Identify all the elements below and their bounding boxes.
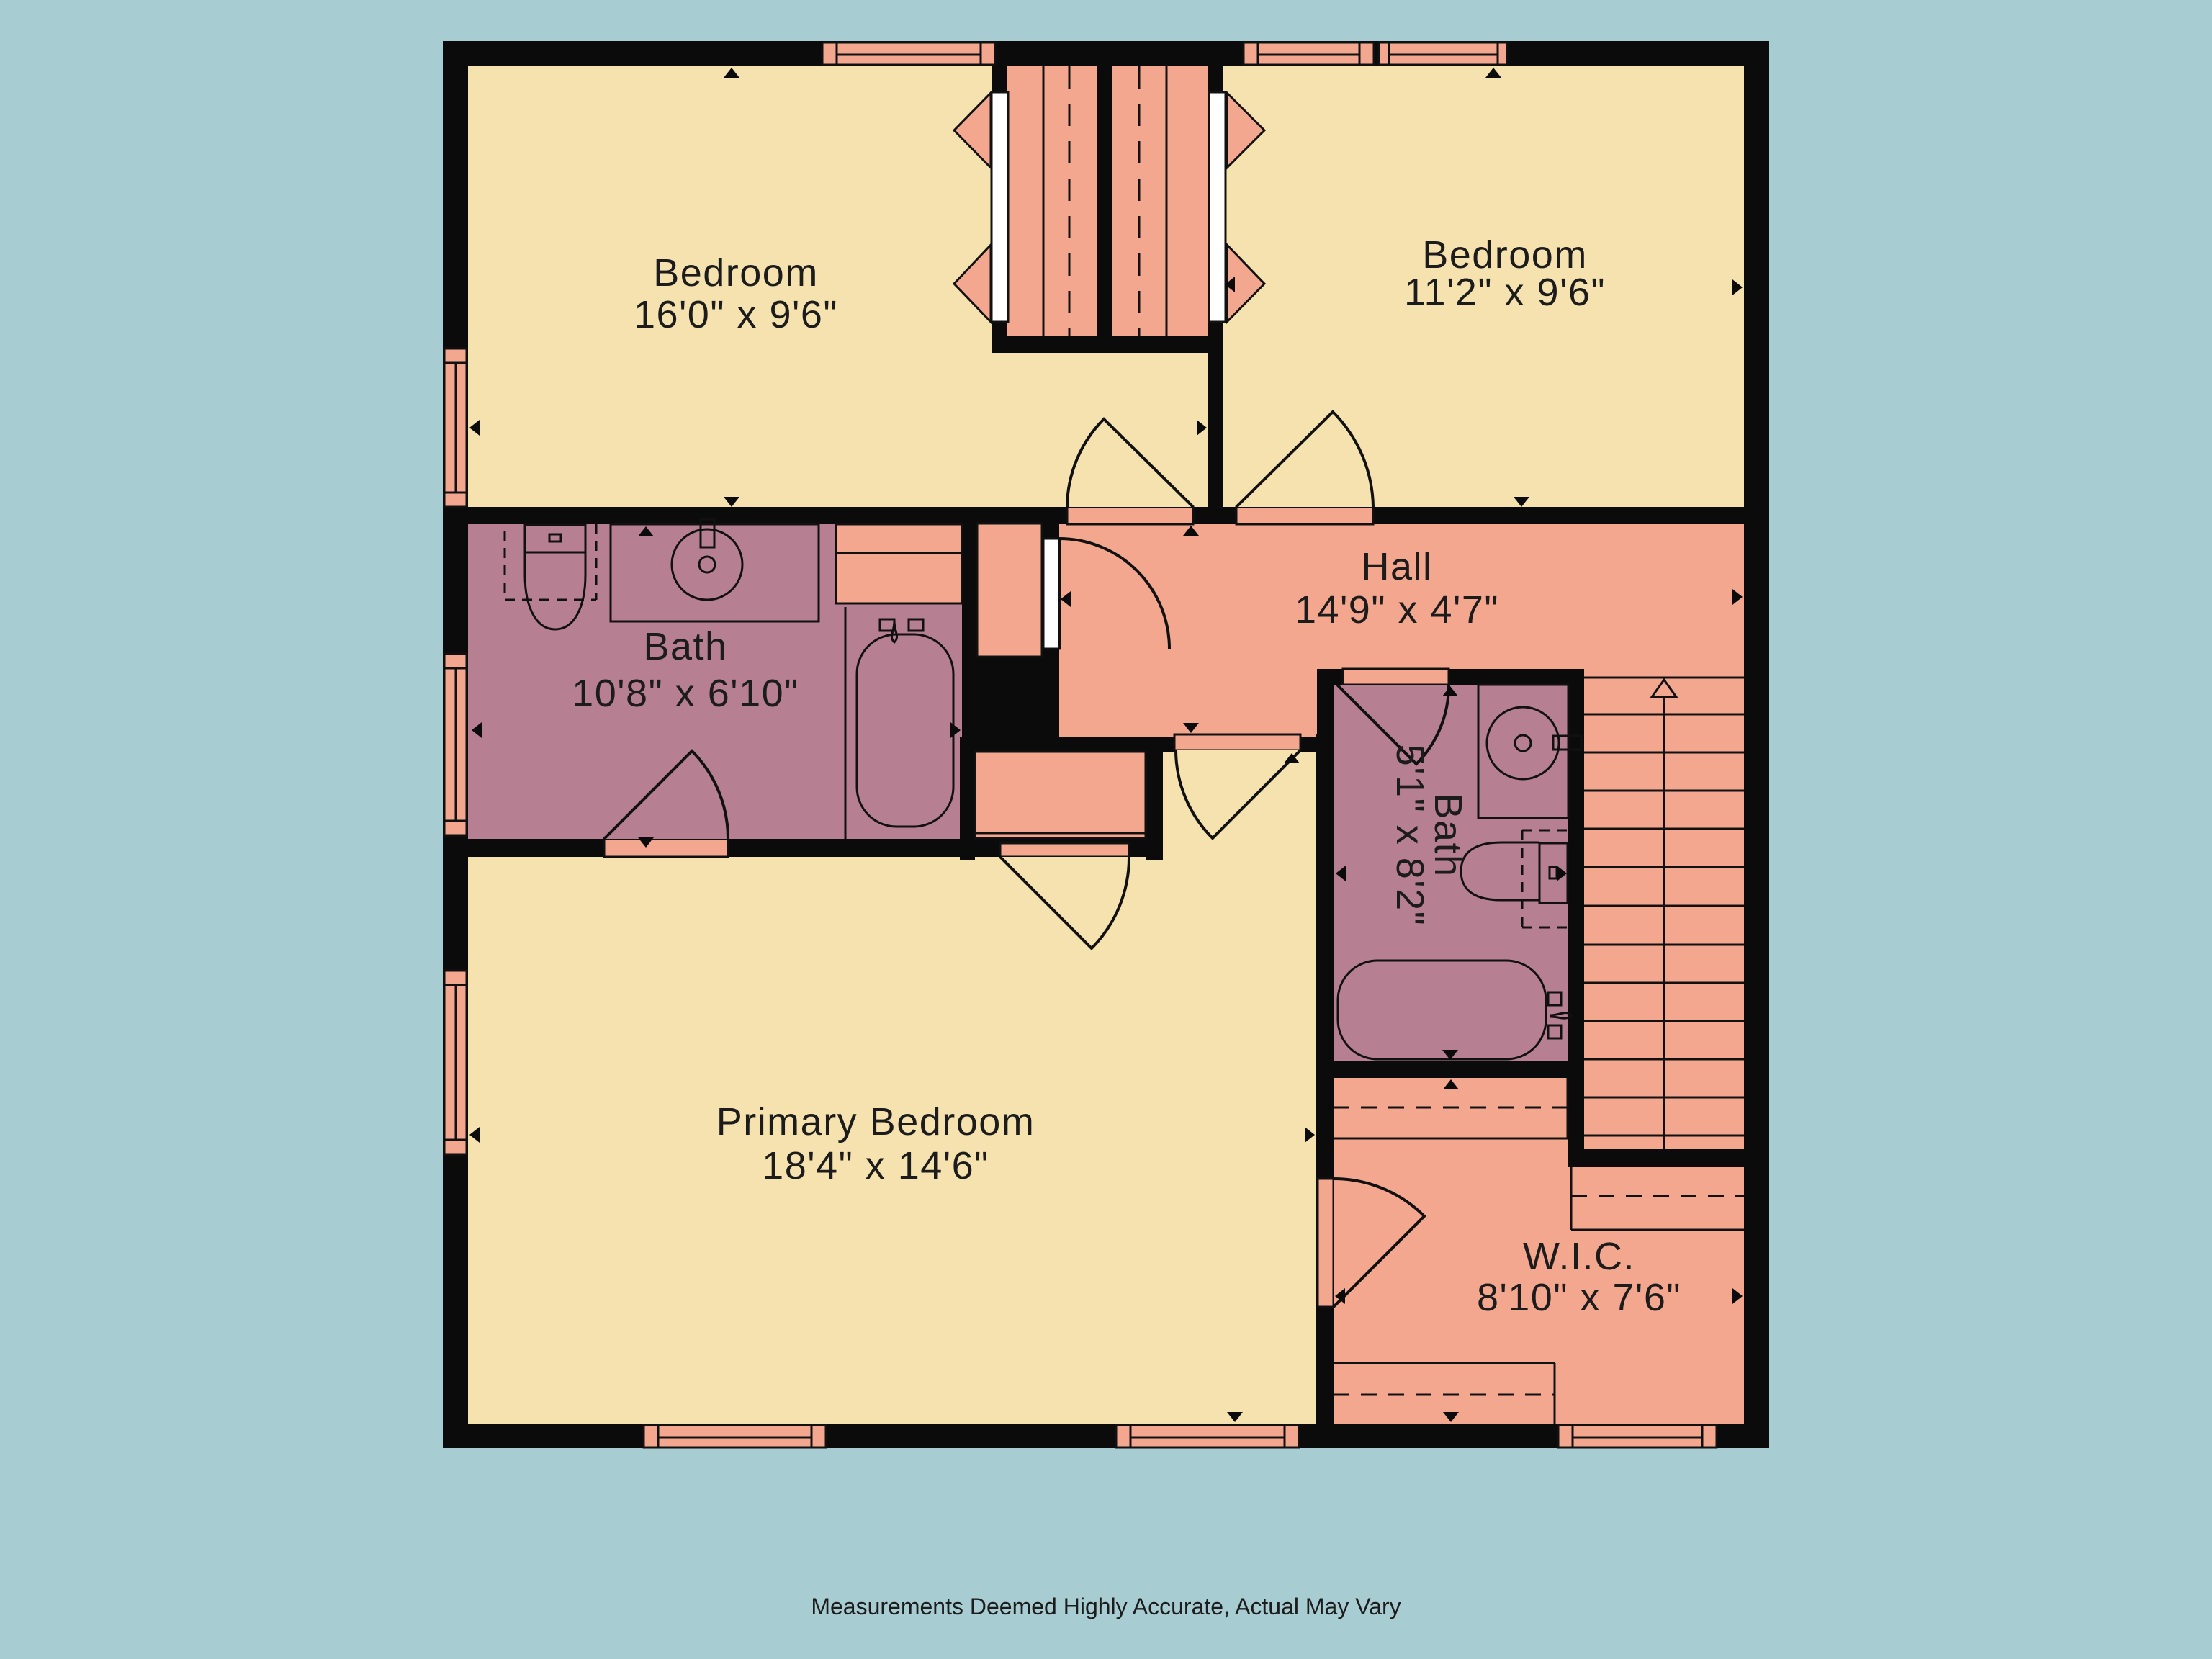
svg-text:14'9" x 4'7": 14'9" x 4'7": [1295, 588, 1499, 631]
svg-text:5'1" x 8'2": 5'1" x 8'2": [1388, 745, 1431, 927]
svg-text:W.I.C.: W.I.C.: [1523, 1235, 1635, 1278]
svg-text:Bath: Bath: [643, 625, 727, 668]
svg-text:10'8" x 6'10": 10'8" x 6'10": [572, 672, 799, 715]
svg-text:Bedroom: Bedroom: [1422, 233, 1588, 276]
svg-text:Hall: Hall: [1361, 545, 1432, 588]
svg-text:18'4" x 14'6": 18'4" x 14'6": [762, 1144, 989, 1187]
svg-text:16'0" x 9'6": 16'0" x 9'6": [634, 293, 838, 336]
svg-text:Bedroom: Bedroom: [653, 251, 819, 295]
svg-text:Primary Bedroom: Primary Bedroom: [716, 1100, 1035, 1143]
svg-text:11'2" x 9'6": 11'2" x 9'6": [1404, 271, 1606, 314]
svg-text:Measurements Deemed Highly Acc: Measurements Deemed Highly Accurate, Act…: [811, 1593, 1401, 1619]
svg-text:Bath: Bath: [1426, 793, 1470, 877]
svg-text:8'10" x 7'6": 8'10" x 7'6": [1477, 1276, 1681, 1319]
